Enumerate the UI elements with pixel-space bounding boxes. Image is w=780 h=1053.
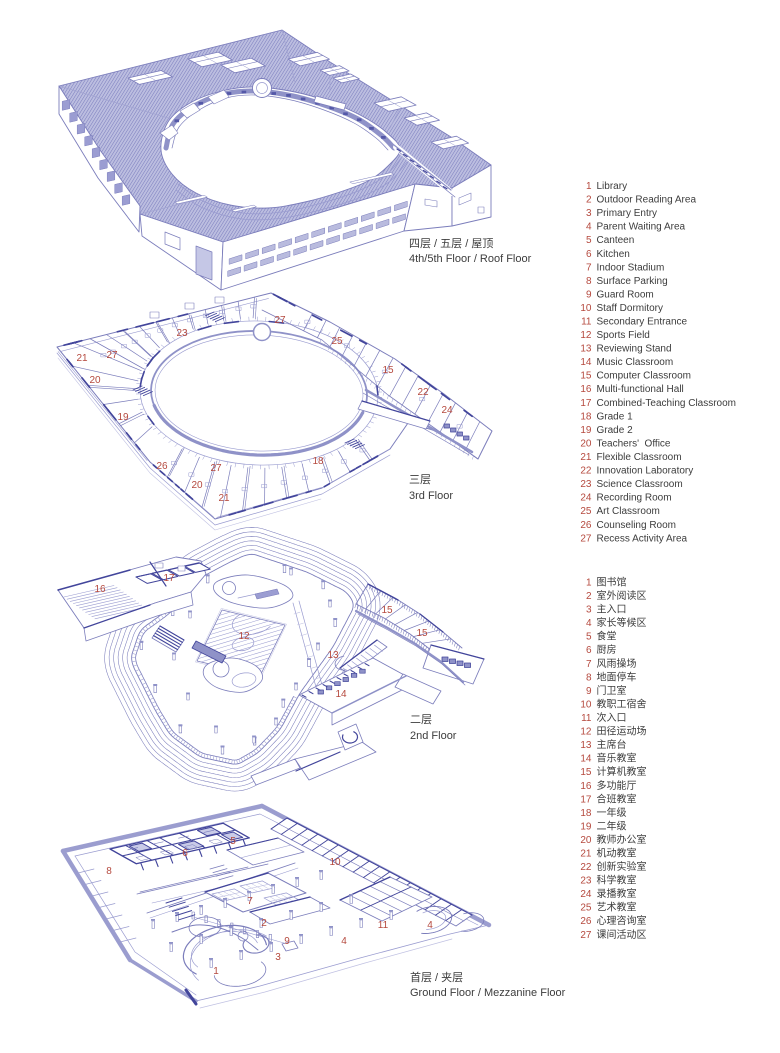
svg-text:13: 13 [327,650,339,661]
svg-text:艺术教室: 艺术教室 [597,901,637,914]
svg-text:20: 20 [89,375,101,386]
svg-text:主席台: 主席台 [597,738,627,751]
svg-text:室外阅读区: 室外阅读区 [597,589,647,602]
svg-text:二层: 二层 [410,713,432,726]
svg-text:首层 / 夹层: 首层 / 夹层 [410,970,463,984]
svg-text:Flexible Classroom: Flexible Classroom [597,452,682,463]
svg-text:12: 12 [238,631,250,642]
svg-text:1: 1 [586,578,592,589]
svg-text:26: 26 [580,520,592,531]
svg-text:3: 3 [586,605,592,616]
svg-text:17: 17 [580,398,592,409]
svg-text:图书馆: 图书馆 [597,576,627,589]
svg-text:21: 21 [580,452,592,463]
svg-text:11: 11 [378,920,389,931]
svg-text:2: 2 [586,591,592,602]
svg-text:4: 4 [427,920,433,931]
svg-text:食堂: 食堂 [597,630,617,643]
svg-text:9: 9 [586,289,592,300]
svg-text:14: 14 [580,754,592,765]
svg-text:27: 27 [580,930,592,941]
svg-text:2: 2 [261,918,267,929]
svg-text:Combined-Teaching Classroom: Combined-Teaching Classroom [597,398,737,409]
svg-text:18: 18 [580,808,592,819]
svg-text:22: 22 [580,466,592,477]
svg-text:Grade 2: Grade 2 [597,425,634,436]
svg-text:11: 11 [581,713,592,724]
svg-text:16: 16 [580,384,592,395]
svg-text:Grade 1: Grade 1 [597,411,634,422]
svg-text:25: 25 [580,903,592,914]
svg-text:8: 8 [586,672,592,683]
svg-text:20: 20 [191,480,203,491]
svg-text:4: 4 [586,618,592,629]
svg-text:6: 6 [586,249,592,260]
svg-text:23: 23 [580,479,592,490]
svg-text:20: 20 [580,438,592,449]
svg-text:田径运动场: 田径运动场 [597,725,647,738]
svg-text:15: 15 [382,365,394,376]
svg-text:机动教室: 机动教室 [597,847,637,860]
svg-text:3: 3 [275,952,281,963]
svg-text:6: 6 [586,645,592,656]
svg-text:心理咨询室: 心理咨询室 [597,914,647,927]
svg-text:Science Classroom: Science Classroom [597,479,683,490]
svg-text:Parent Waiting Area: Parent Waiting Area [597,222,686,233]
svg-text:地面停车: 地面停车 [597,670,637,683]
svg-text:24: 24 [580,493,592,504]
svg-text:二年级: 二年级 [597,819,627,832]
svg-text:门卫室: 门卫室 [597,684,627,697]
svg-text:15: 15 [381,605,393,616]
svg-text:1: 1 [586,181,592,192]
svg-text:7: 7 [247,896,253,907]
svg-text:8: 8 [586,276,592,287]
svg-text:Teachers' Office: Teachers' Office [597,438,671,449]
svg-text:24: 24 [580,889,592,900]
svg-text:21: 21 [580,849,592,860]
svg-text:Secondary Entrance: Secondary Entrance [597,317,688,328]
svg-text:17: 17 [580,794,592,805]
svg-text:24: 24 [441,405,453,416]
svg-text:4: 4 [341,936,347,947]
svg-text:一年级: 一年级 [597,806,627,819]
svg-text:10: 10 [580,303,592,314]
svg-text:21: 21 [218,493,230,504]
svg-text:9: 9 [284,936,290,947]
svg-text:Surface Parking: Surface Parking [597,276,668,287]
svg-text:Reviewing Stand: Reviewing Stand [597,344,672,355]
svg-text:Counseling Room: Counseling Room [597,520,677,531]
svg-text:13: 13 [580,740,592,751]
svg-text:14: 14 [580,357,592,368]
svg-text:4th/5th Floor / Roof Floor: 4th/5th Floor / Roof Floor [409,253,532,265]
svg-text:三层: 三层 [409,473,431,486]
svg-text:家长等候区: 家长等候区 [597,616,647,629]
svg-text:16: 16 [580,781,592,792]
svg-text:3rd Floor: 3rd Floor [409,490,453,502]
svg-text:计算机教室: 计算机教室 [597,765,647,778]
svg-text:厨房: 厨房 [597,643,617,656]
svg-text:14: 14 [335,689,347,700]
svg-text:次入口: 次入口 [597,711,627,724]
svg-text:27: 27 [274,315,286,326]
svg-text:22: 22 [580,862,592,873]
svg-text:教职工宿舍: 教职工宿舍 [597,698,647,711]
svg-text:Staff Dormitory: Staff Dormitory [597,303,664,314]
svg-text:11: 11 [581,317,592,328]
svg-text:5: 5 [230,836,236,847]
svg-text:10: 10 [580,700,592,711]
svg-text:2nd Floor: 2nd Floor [410,730,457,742]
svg-text:18: 18 [580,411,592,422]
svg-text:10: 10 [329,857,341,868]
svg-text:26: 26 [580,916,592,927]
svg-text:19: 19 [117,412,129,423]
svg-text:2: 2 [586,195,592,206]
svg-text:26: 26 [156,461,168,472]
svg-text:27: 27 [580,533,592,544]
svg-text:9: 9 [586,686,592,697]
svg-text:Canteen: Canteen [597,235,635,246]
svg-text:25: 25 [331,336,343,347]
svg-text:19: 19 [580,425,592,436]
svg-text:Ground Floor / Mezzanine Floor: Ground Floor / Mezzanine Floor [410,987,566,999]
svg-text:Sports Field: Sports Field [597,330,650,341]
svg-text:15: 15 [580,767,592,778]
svg-text:23: 23 [580,876,592,887]
svg-text:7: 7 [586,659,592,670]
svg-text:Computer Classroom: Computer Classroom [597,371,691,382]
svg-text:22: 22 [417,387,429,398]
svg-text:21: 21 [76,353,88,364]
svg-text:Outdoor Reading Area: Outdoor Reading Area [597,195,697,206]
svg-text:四层 / 五层 / 屋顶: 四层 / 五层 / 屋顶 [409,237,493,250]
svg-text:7: 7 [586,262,592,273]
svg-text:风雨操场: 风雨操场 [597,657,637,670]
svg-text:Guard Room: Guard Room [597,289,654,300]
svg-text:27: 27 [210,463,222,474]
svg-text:Indoor Stadium: Indoor Stadium [597,262,665,273]
svg-text:6: 6 [182,848,188,859]
svg-text:3: 3 [586,208,592,219]
svg-text:Music Classroom: Music Classroom [597,357,674,368]
svg-text:17: 17 [163,573,175,584]
svg-text:Multi-functional Hall: Multi-functional Hall [597,384,684,395]
svg-text:教师办公室: 教师办公室 [597,833,647,846]
svg-text:课间活动区: 课间活动区 [597,928,647,941]
svg-text:15: 15 [580,371,592,382]
svg-text:Library: Library [597,181,628,192]
svg-text:主入口: 主入口 [597,604,627,616]
svg-text:27: 27 [106,350,118,361]
svg-text:1: 1 [213,966,219,977]
svg-text:Primary Entry: Primary Entry [597,208,658,219]
svg-text:12: 12 [580,330,592,341]
svg-text:多功能厅: 多功能厅 [597,779,637,792]
svg-text:Kitchen: Kitchen [597,249,630,260]
svg-text:8: 8 [106,866,112,877]
svg-text:Innovation Laboratory: Innovation Laboratory [597,466,694,477]
svg-text:Recess Activity Area: Recess Activity Area [597,533,688,544]
svg-text:20: 20 [580,835,592,846]
svg-text:16: 16 [94,584,106,595]
svg-text:4: 4 [586,222,592,233]
svg-text:合班教室: 合班教室 [597,792,637,805]
svg-text:5: 5 [586,632,592,643]
svg-text:Art Classroom: Art Classroom [597,506,660,517]
svg-text:15: 15 [416,628,428,639]
svg-text:录播教室: 录播教室 [597,887,637,900]
svg-text:创新实验室: 创新实验室 [597,860,647,873]
svg-text:12: 12 [580,727,592,738]
svg-text:19: 19 [580,821,592,832]
svg-text:音乐教室: 音乐教室 [597,752,637,765]
svg-text:23: 23 [176,328,188,339]
svg-text:13: 13 [580,344,592,355]
svg-text:25: 25 [580,506,592,517]
svg-text:5: 5 [586,235,592,246]
svg-text:18: 18 [312,456,324,467]
svg-text:科学教室: 科学教室 [597,874,637,887]
svg-text:Recording Room: Recording Room [597,493,672,504]
